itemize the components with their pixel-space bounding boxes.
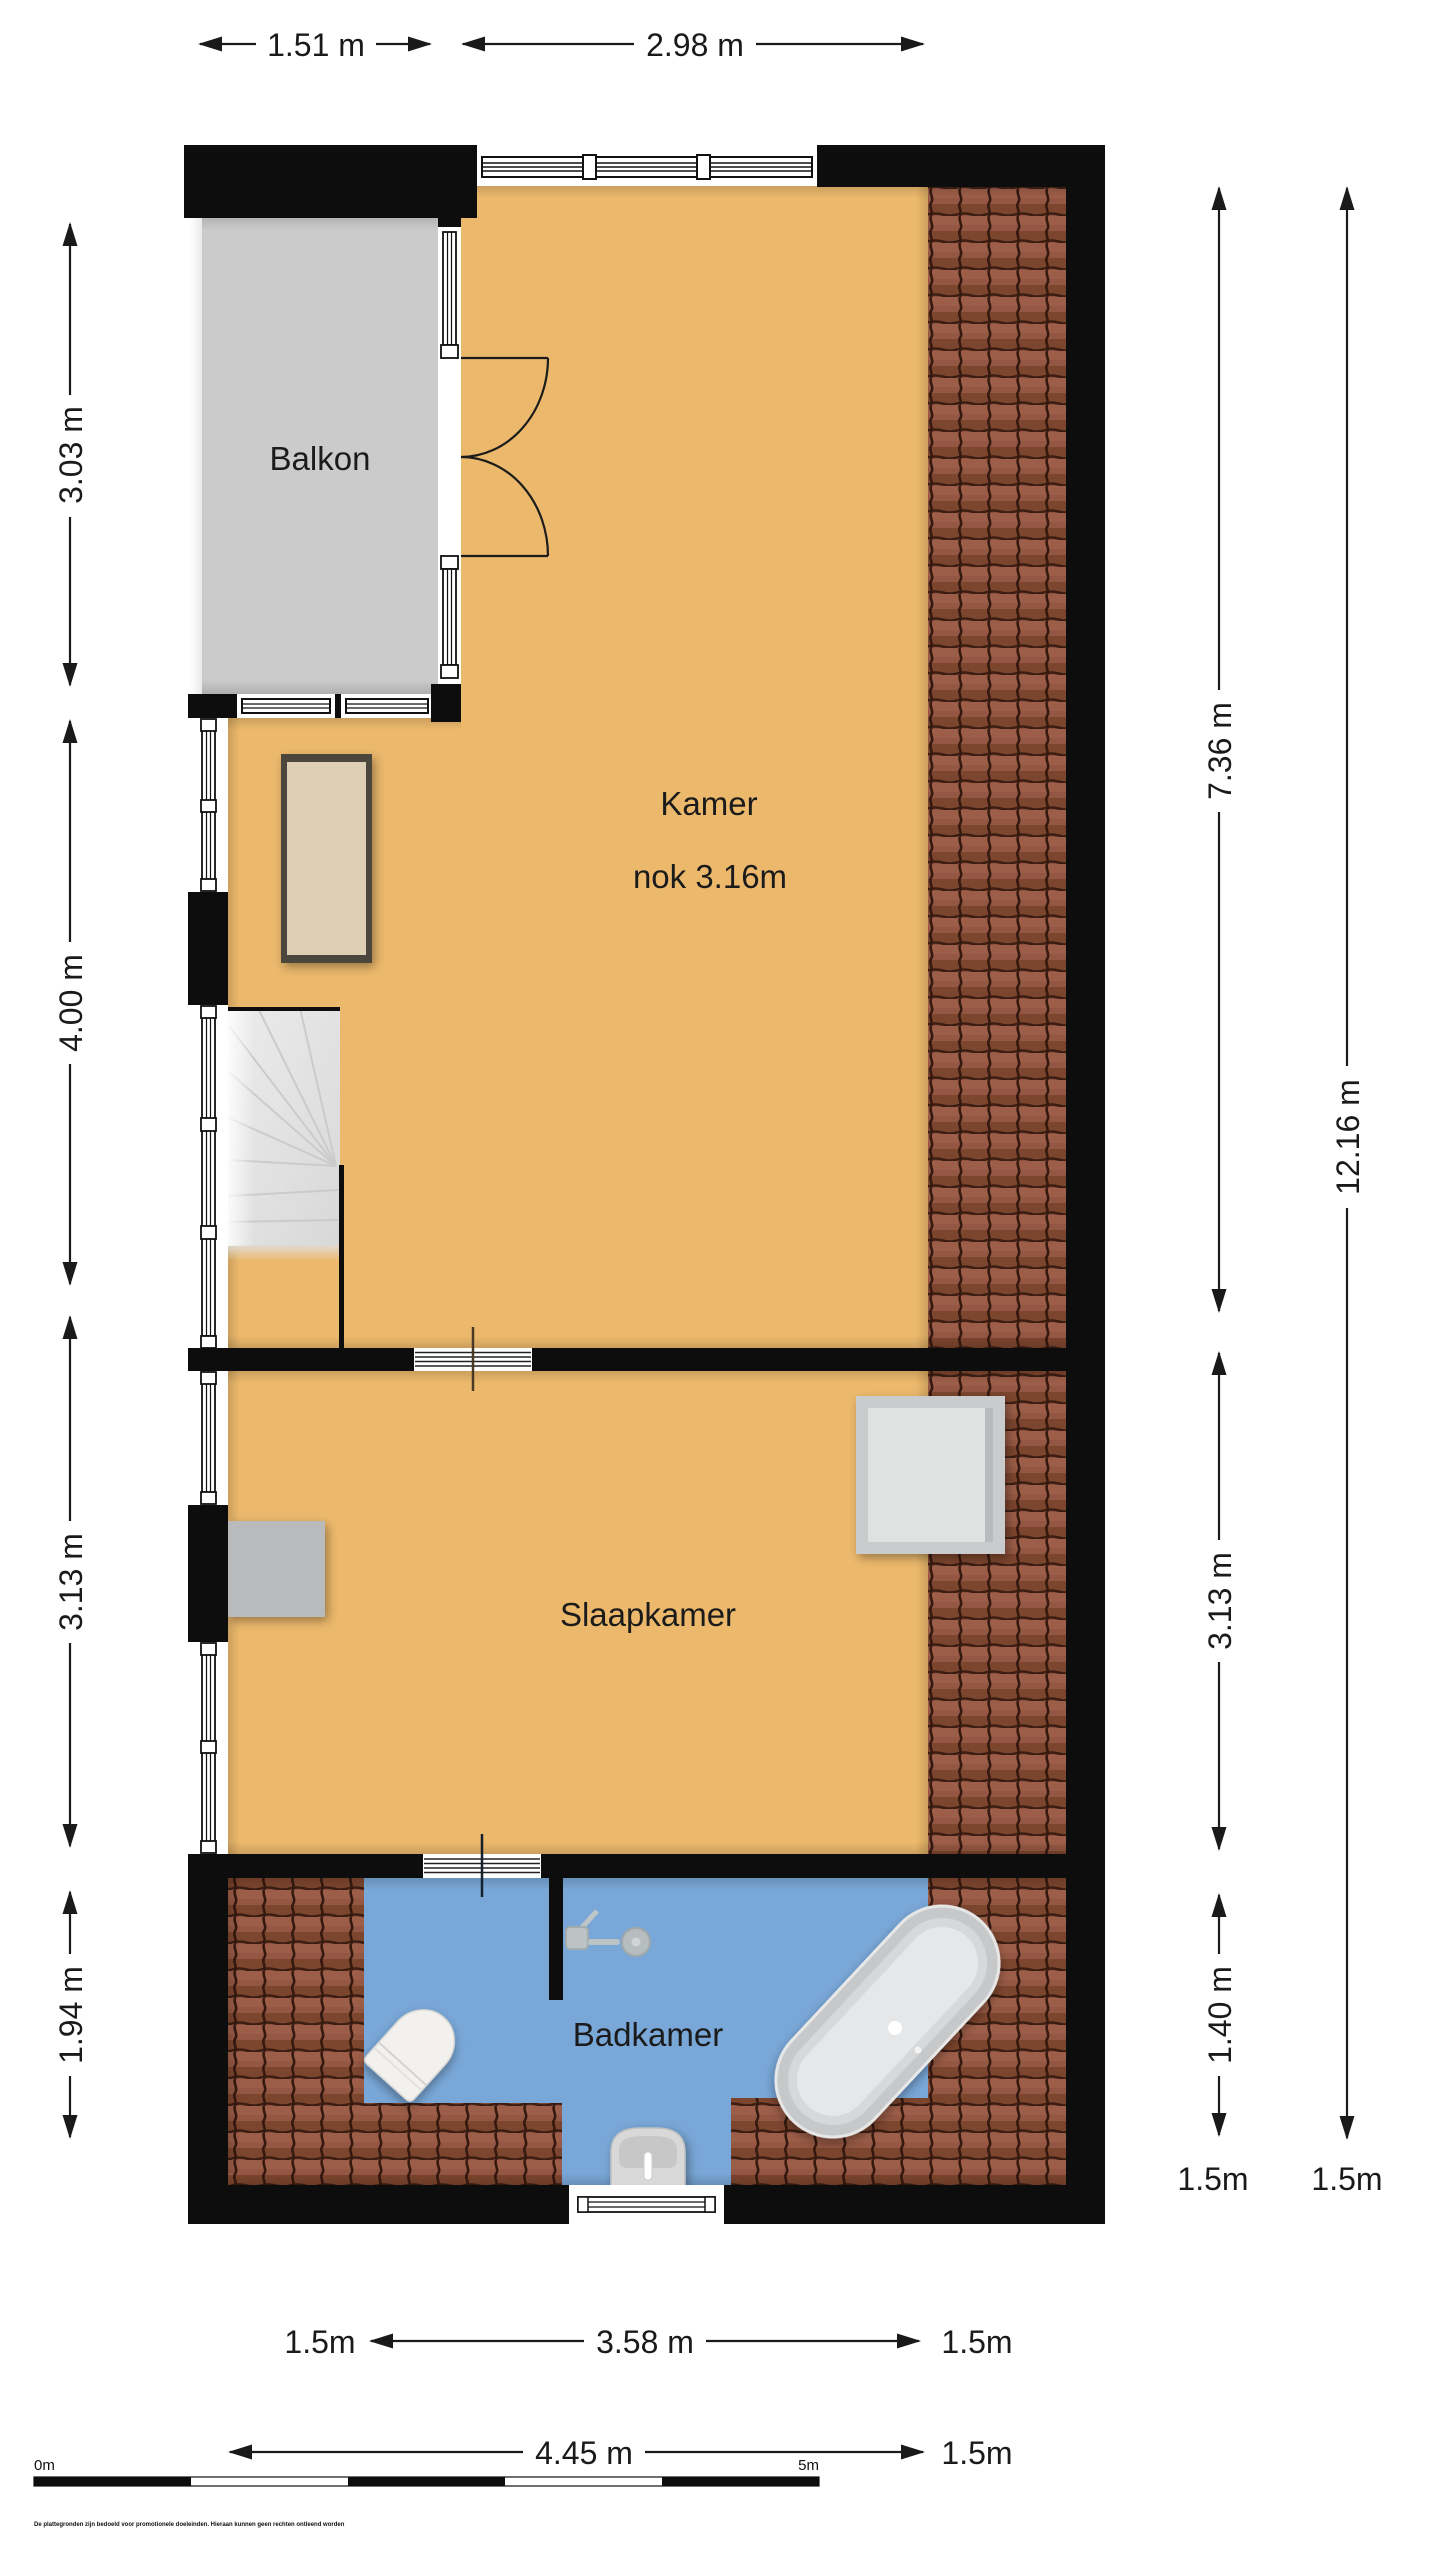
svg-text:4.45 m: 4.45 m bbox=[535, 2435, 633, 2471]
svg-text:Kamer: Kamer bbox=[660, 785, 757, 822]
svg-text:3.03 m: 3.03 m bbox=[53, 406, 89, 504]
svg-text:7.36 m: 7.36 m bbox=[1202, 702, 1238, 800]
svg-text:1.5m: 1.5m bbox=[941, 2435, 1012, 2471]
svg-text:1.5m: 1.5m bbox=[1177, 2161, 1248, 2197]
svg-text:Badkamer: Badkamer bbox=[573, 2016, 723, 2053]
svg-text:3.13 m: 3.13 m bbox=[53, 1533, 89, 1631]
svg-text:4.00 m: 4.00 m bbox=[53, 954, 89, 1052]
svg-text:Slaapkamer: Slaapkamer bbox=[560, 1596, 736, 1633]
svg-text:1.5m: 1.5m bbox=[1311, 2161, 1382, 2197]
svg-text:De plattegronden zijn bedoeld: De plattegronden zijn bedoeld voor promo… bbox=[34, 2522, 345, 2528]
svg-text:3.13 m: 3.13 m bbox=[1202, 1552, 1238, 1650]
svg-text:12.16 m: 12.16 m bbox=[1330, 1079, 1366, 1195]
svg-text:0m: 0m bbox=[34, 2457, 55, 2474]
svg-text:1.94 m: 1.94 m bbox=[53, 1966, 89, 2064]
svg-text:1.5m: 1.5m bbox=[941, 2324, 1012, 2360]
svg-text:1.40 m: 1.40 m bbox=[1202, 1966, 1238, 2064]
svg-text:1.5m: 1.5m bbox=[284, 2324, 355, 2360]
svg-text:Balkon: Balkon bbox=[270, 440, 371, 477]
svg-text:3.58 m: 3.58 m bbox=[596, 2324, 694, 2360]
svg-text:2.98 m: 2.98 m bbox=[646, 27, 744, 63]
svg-text:nok 3.16m: nok 3.16m bbox=[633, 858, 787, 895]
svg-text:5m: 5m bbox=[798, 2457, 819, 2474]
svg-text:1.51 m: 1.51 m bbox=[267, 27, 365, 63]
